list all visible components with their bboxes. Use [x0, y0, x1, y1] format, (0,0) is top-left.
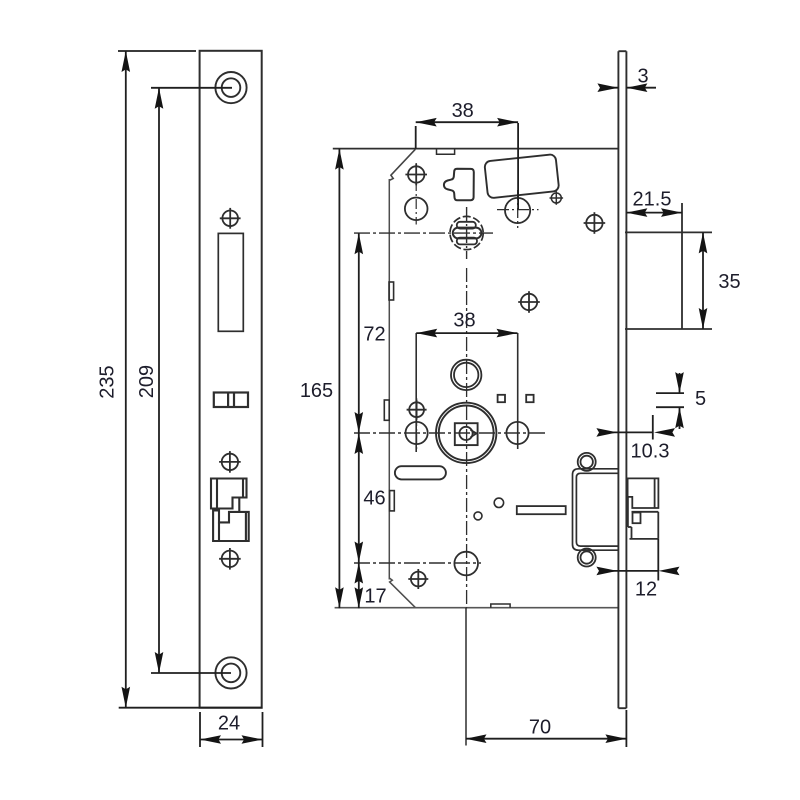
svg-text:209: 209 [136, 365, 158, 398]
svg-text:165: 165 [300, 380, 333, 402]
svg-text:46: 46 [363, 488, 385, 510]
svg-text:70: 70 [529, 717, 551, 739]
svg-text:38: 38 [453, 310, 475, 332]
svg-text:10.3: 10.3 [631, 440, 670, 462]
svg-text:72: 72 [363, 324, 385, 346]
svg-text:24: 24 [218, 713, 240, 735]
svg-text:3: 3 [637, 66, 648, 88]
svg-text:35: 35 [718, 271, 740, 293]
svg-text:21.5: 21.5 [633, 189, 672, 211]
svg-text:17: 17 [364, 586, 386, 608]
svg-text:5: 5 [695, 388, 706, 410]
svg-text:38: 38 [452, 100, 474, 122]
svg-text:12: 12 [635, 579, 657, 601]
svg-text:235: 235 [97, 365, 119, 398]
